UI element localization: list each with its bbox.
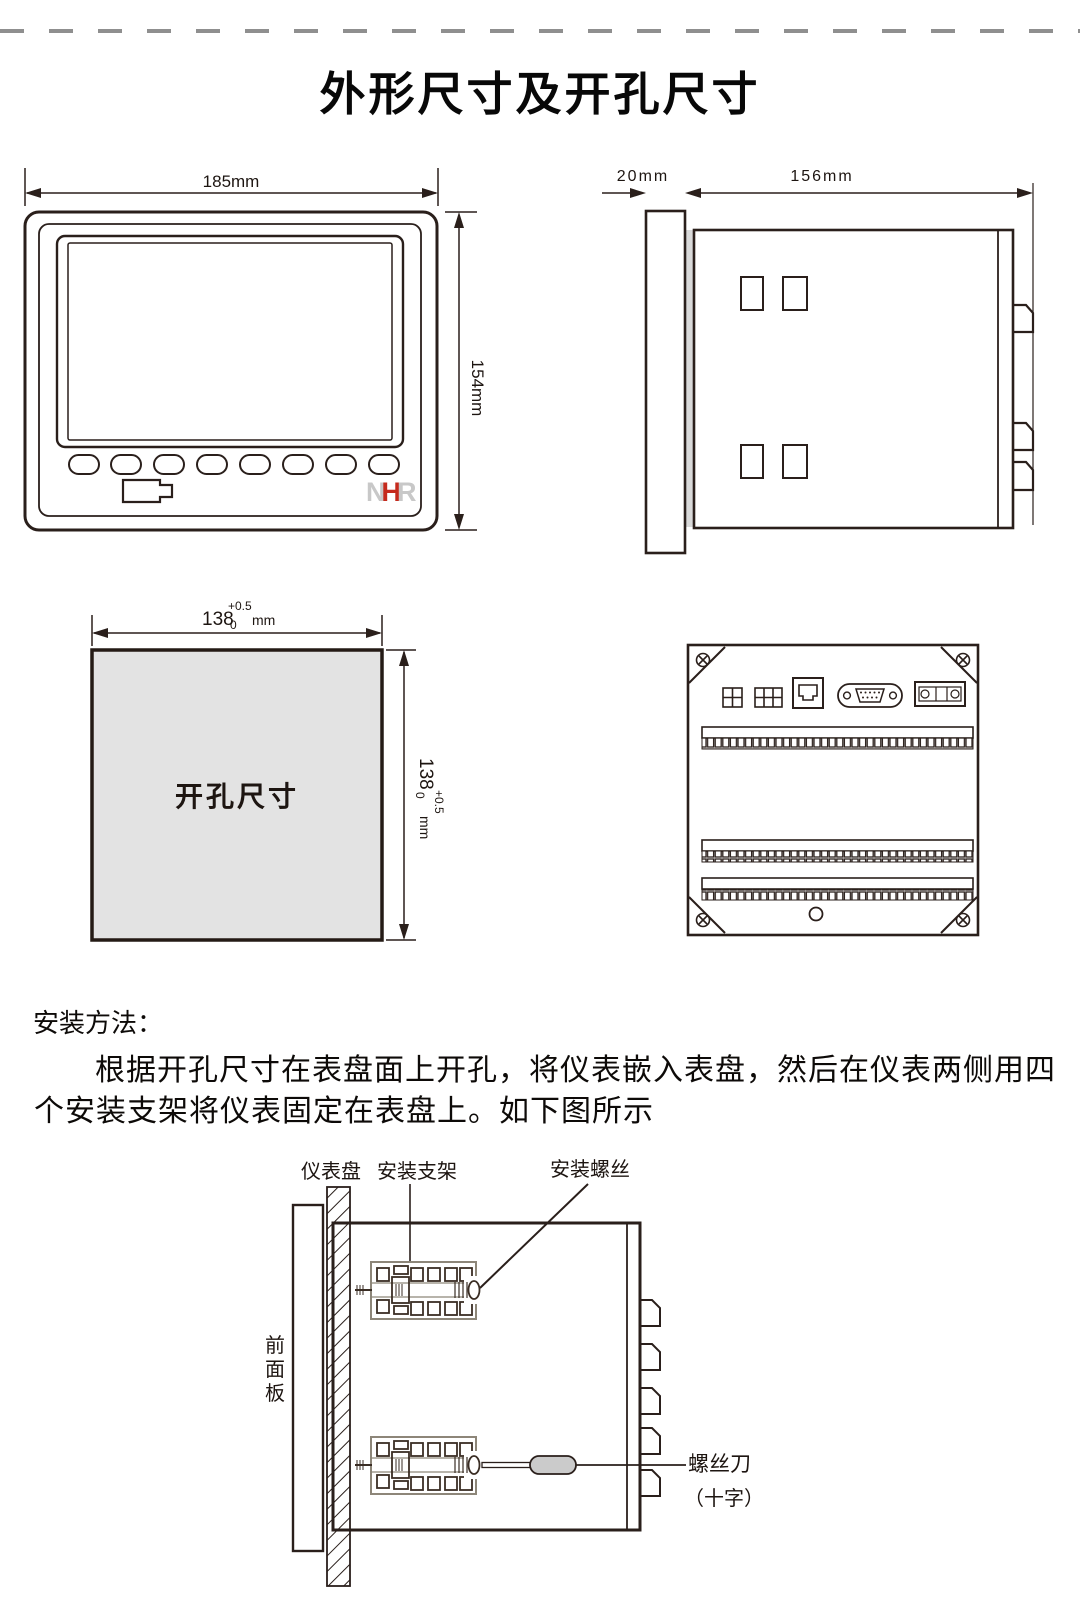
rear-terminal-strips xyxy=(702,727,973,900)
terminal-strip-teeth xyxy=(702,738,973,749)
side-length-label: 156mm xyxy=(790,168,853,185)
front-button xyxy=(326,455,356,474)
side-terminal-clips xyxy=(1013,305,1033,490)
side-depth-label: 20mm xyxy=(617,168,669,185)
usb-port-icon xyxy=(123,480,172,502)
side-body-drawing xyxy=(646,211,1033,553)
rear-view-diagram xyxy=(660,620,1000,960)
cutout-height-dim-label: 138 +0.5 0 mm xyxy=(413,758,446,839)
cutout-label: 开孔尺寸 xyxy=(175,781,299,813)
panel-wall-hatched xyxy=(327,1187,350,1586)
connector-3x2-icon xyxy=(755,688,782,707)
svg-text:mm: mm xyxy=(252,612,275,628)
terminal-strip xyxy=(702,878,973,889)
front-panel-char: 面 xyxy=(265,1359,285,1381)
front-panel-char: 前 xyxy=(265,1334,285,1357)
install-method-heading: 安装方法： xyxy=(33,1003,163,1040)
db9-serial-port-icon xyxy=(838,684,902,707)
svg-text:138: 138 xyxy=(415,758,436,790)
front-button xyxy=(197,455,227,474)
mounting-bracket-drawing xyxy=(355,1262,480,1319)
side-view-diagram: 20mm 156mm xyxy=(580,150,1080,570)
manual-page: 外形尺寸及开孔尺寸 185mm xyxy=(0,0,1080,1613)
ethernet-port-icon xyxy=(793,678,823,708)
rear-top-connectors xyxy=(723,678,965,708)
label-front-panel-vertical: 前面板 xyxy=(265,1334,285,1405)
front-button-row xyxy=(69,455,399,474)
installation-diagram: 仪表盘 安装支架 安装螺丝 xyxy=(220,1140,800,1613)
power-terminal-icon xyxy=(915,682,965,706)
front-width-label: 185mm xyxy=(203,172,260,191)
label-screwdriver-type: （十字） xyxy=(684,1487,764,1510)
svg-text:mm: mm xyxy=(417,816,433,839)
page-top-dashed-border xyxy=(0,29,1080,33)
front-button xyxy=(69,455,99,474)
front-screen xyxy=(68,243,392,440)
side-bracket-holes xyxy=(741,277,807,478)
label-mounting-screw: 安装螺丝 xyxy=(550,1158,630,1181)
front-panel-char: 板 xyxy=(265,1382,285,1405)
screwdriver-drawing xyxy=(482,1456,686,1474)
nhr-logo: NHR xyxy=(366,477,417,507)
front-view-diagram: 185mm NHR xyxy=(0,150,500,550)
front-button xyxy=(283,455,313,474)
label-mounting-bracket: 安装支架 xyxy=(377,1160,457,1183)
front-button xyxy=(154,455,184,474)
install-paragraph-line2: 个安装支架将仪表固定在表盘上。如下图所示 xyxy=(34,1086,654,1130)
terminal-strip-teeth xyxy=(702,889,973,900)
cutout-height-dimension xyxy=(386,650,416,940)
cutout-width-dim-label: 138 +0.5 0 mm xyxy=(202,599,275,632)
front-panel-section xyxy=(293,1205,323,1551)
page-title: 外形尺寸及开孔尺寸 xyxy=(0,58,1080,124)
front-button xyxy=(240,455,270,474)
svg-text:0: 0 xyxy=(230,618,237,632)
svg-text:+0.5: +0.5 xyxy=(228,599,252,613)
side-front-bezel xyxy=(646,211,685,553)
cutout-diagram: 138 +0.5 0 mm 开孔尺寸 138 +0.5 0 mm xyxy=(50,560,470,960)
front-height-label: 154mm xyxy=(468,360,487,417)
front-button xyxy=(369,455,399,474)
label-screwdriver: 螺丝刀 xyxy=(688,1452,751,1476)
install-paragraph-line1: 根据开孔尺寸在表盘面上开孔，将仪表嵌入表盘，然后在仪表两侧用四 xyxy=(95,1045,1056,1089)
side-body xyxy=(694,230,1013,528)
label-instrument-panel: 仪表盘 xyxy=(301,1160,361,1183)
terminal-strip-teeth xyxy=(702,851,973,862)
rear-center-hole xyxy=(810,908,823,921)
terminal-strip xyxy=(702,840,973,851)
nhr-logo-r: R xyxy=(397,477,417,507)
connector-2x2-icon xyxy=(723,688,742,707)
svg-text:0: 0 xyxy=(413,792,427,799)
terminal-strip xyxy=(702,727,973,738)
body-terminal-clips xyxy=(640,1300,660,1496)
front-button xyxy=(111,455,141,474)
cutout-width-dimension xyxy=(92,615,382,646)
front-screen-frame xyxy=(57,236,403,447)
svg-text:+0.5: +0.5 xyxy=(432,790,446,814)
